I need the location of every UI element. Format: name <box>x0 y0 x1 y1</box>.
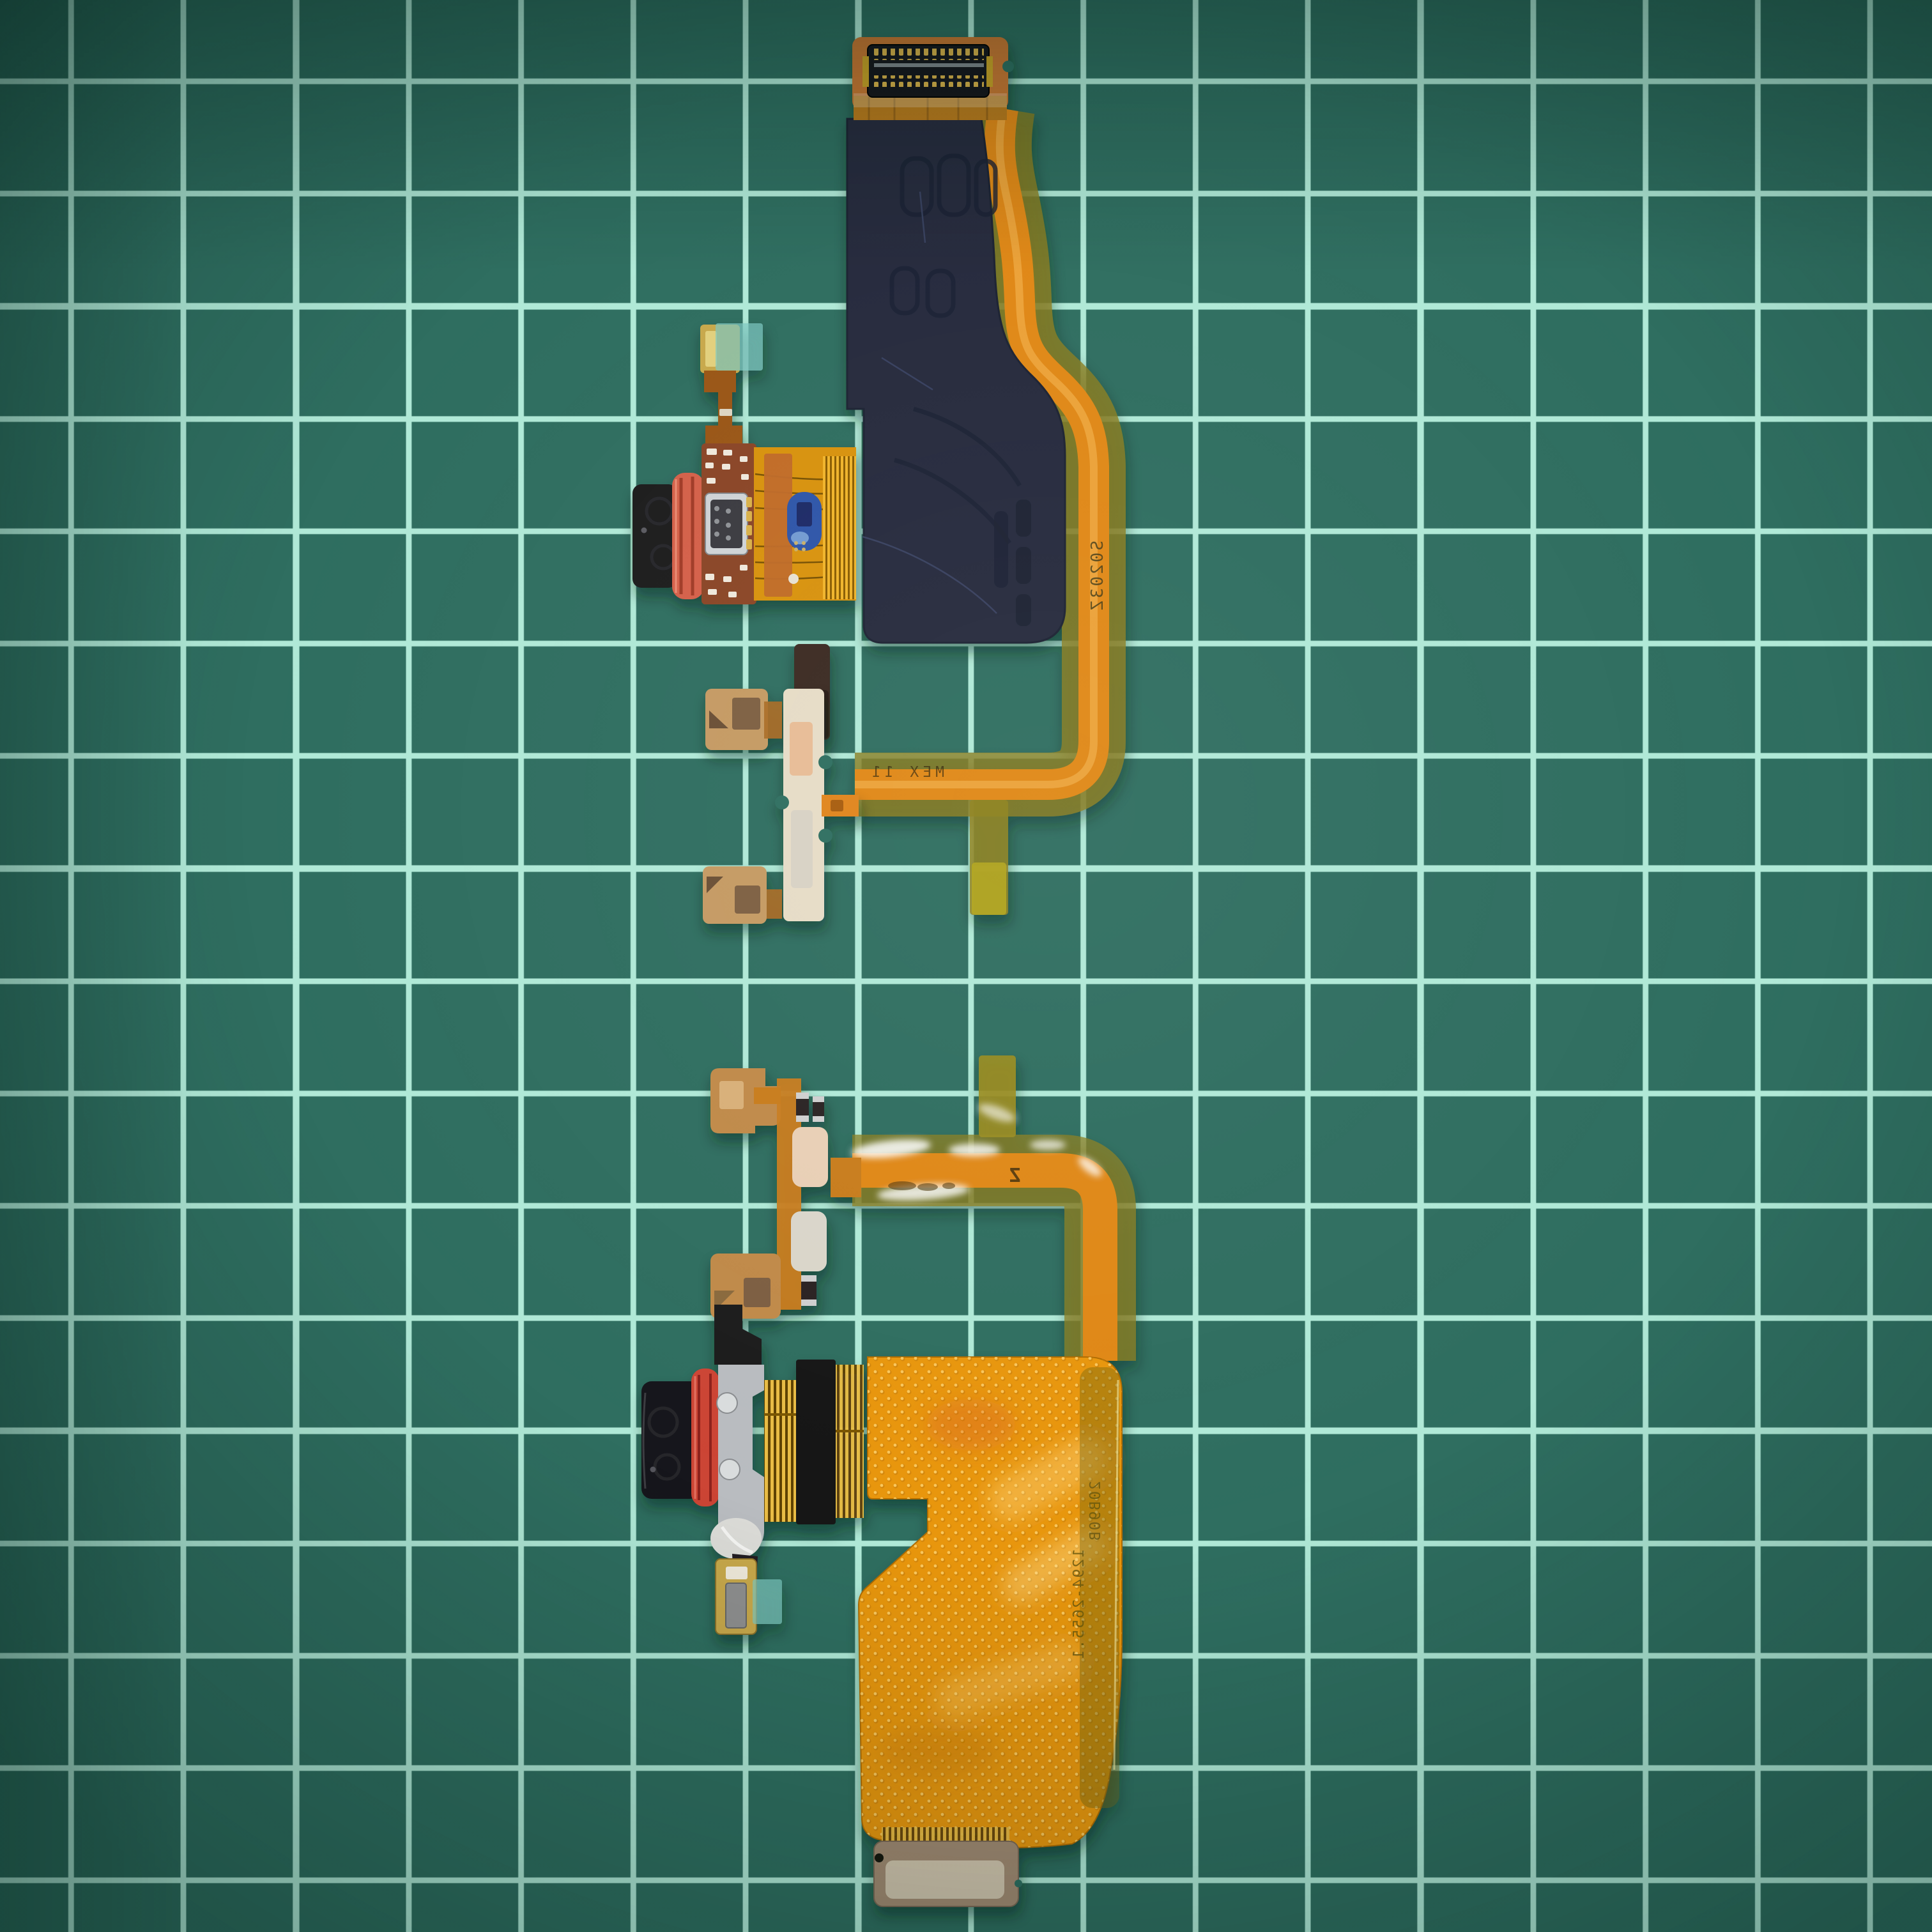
plug-mic-hole-bottom <box>650 1467 656 1473</box>
stiffener-notch <box>775 795 789 809</box>
yellow-tab <box>979 1055 1016 1137</box>
button-pad-upper-inlay <box>719 1081 744 1109</box>
acf-zone-1 <box>764 1380 796 1522</box>
pad-lower-square <box>735 885 760 914</box>
button-cream <box>792 1127 828 1187</box>
teal-tape-top <box>716 323 763 371</box>
b2b-pin-row-top <box>874 49 984 60</box>
date-code-marking: 20B90B <box>1087 1481 1104 1542</box>
button-grey <box>791 1211 827 1271</box>
bottom-side-button-flex <box>710 1068 861 1319</box>
stiffener-grey-inlay <box>791 810 813 888</box>
components-layer: S0203Z MEX 11 <box>0 0 1932 1932</box>
gold-wire-zone <box>823 456 856 599</box>
epoxy-blob <box>787 492 822 551</box>
bottom-connector-pad <box>885 1860 1004 1899</box>
b2b-side-tab-left <box>862 56 869 87</box>
top-charging-flex-assembly: S0203Z MEX 11 <box>632 37 1107 915</box>
flex-link-lower <box>764 889 782 919</box>
band-film-marking: Z <box>1009 1165 1021 1187</box>
smd-components <box>796 1092 824 1122</box>
bottom-usb-port-assembly <box>641 1305 864 1634</box>
button-pad-lower-square <box>744 1278 770 1307</box>
b2b-pin-gap <box>874 63 984 67</box>
pad-upper-square <box>732 698 760 730</box>
button-neck <box>831 1158 861 1197</box>
bracket-bump-2 <box>719 1459 740 1480</box>
tab-notch <box>1002 61 1014 72</box>
part-number-marking: 1294-2655.1 <box>1071 1549 1087 1660</box>
button-arm-upper <box>754 1087 781 1104</box>
mic-pad-contact <box>726 1583 746 1628</box>
top-serial-marking: S0203Z <box>1088 540 1107 612</box>
solder-blob <box>710 1518 762 1559</box>
stiffener-notch <box>818 755 832 769</box>
stiffener-notch <box>818 829 832 843</box>
connector-side-notch <box>1015 1880 1022 1887</box>
connector-notch-dot <box>875 1853 884 1862</box>
flex-link-upper <box>764 701 782 739</box>
bracket-bump-1 <box>717 1393 737 1413</box>
kapton-stub-tab-bottom <box>972 862 1006 915</box>
b2b-pin-row-bottom <box>874 75 984 87</box>
bottom-charging-flex-assembly: Z <box>641 1055 1122 1906</box>
b2b-side-tab-right <box>986 56 993 87</box>
stiffener-peach-inlay <box>790 722 813 776</box>
jumper-nub <box>831 800 843 811</box>
acf-zone-2 <box>836 1365 864 1518</box>
smd-component-lower <box>801 1275 816 1306</box>
mic-flex <box>700 323 763 447</box>
photo-scene: S0203Z MEX 11 <box>0 0 1932 1932</box>
solder-dot <box>788 574 799 584</box>
port-black-band <box>796 1360 836 1524</box>
mic-pad-contact <box>705 331 717 367</box>
mic-pad-solder <box>726 1567 747 1579</box>
plug-mic-hole <box>641 528 647 533</box>
top-film-marking: MEX 11 <box>868 764 944 781</box>
top-side-button-flex <box>703 689 859 924</box>
mic-ribbon-label <box>719 409 732 416</box>
teal-tape-bottom <box>753 1579 782 1624</box>
